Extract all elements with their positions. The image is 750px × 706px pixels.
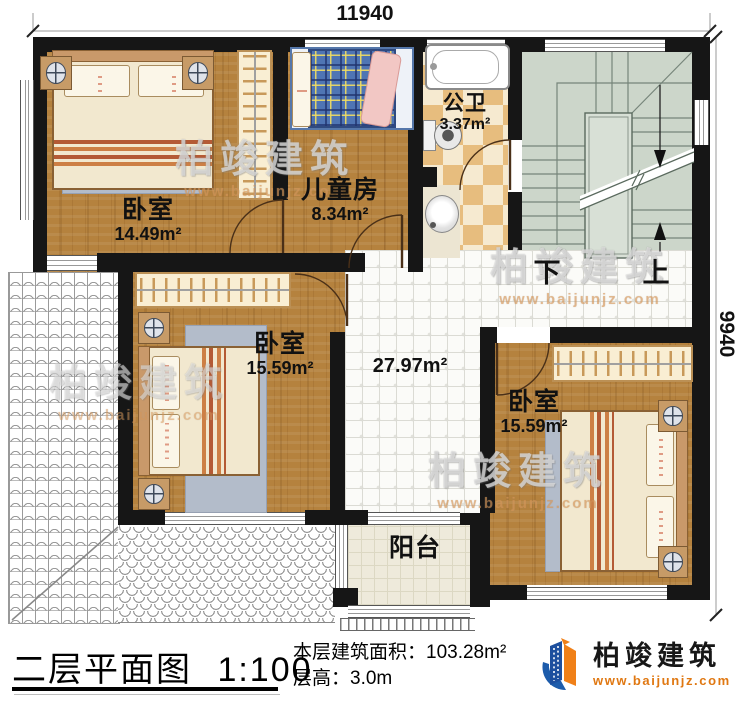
lamp-icon (188, 62, 209, 84)
label-hall-area: 27.97m² (358, 355, 462, 377)
bathtub-inner (432, 50, 499, 84)
floor-plan-canvas: 柏竣建筑 www.baijunjz.com 柏竣建筑 www.baijunjz.… (0, 0, 750, 706)
logo: 柏竣建筑 www.baijunjz.com (536, 636, 731, 694)
label-kids-room: 儿童房 8.34m² (280, 176, 400, 224)
wardrobe-bedroom1 (237, 50, 272, 200)
logo-url: www.baijunjz.com (593, 673, 731, 688)
nightstand-bedroom1-left (40, 56, 72, 90)
nightstand-bedroom2-bottom (138, 478, 170, 510)
wall-horizontal-mid (97, 253, 365, 272)
lamp-icon (144, 318, 165, 339)
lamp-icon (144, 484, 165, 505)
room-area: 27.97m² (358, 355, 462, 377)
wall-bedroom3-bottom-a (480, 585, 527, 600)
window-stairs-right (694, 100, 709, 145)
label-bathroom: 公卫 3.37m² (424, 92, 506, 133)
bathtub-faucet-icon (430, 63, 437, 70)
title-underline-thin (14, 694, 280, 695)
room-area: 8.34m² (280, 204, 400, 224)
label-bedroom2: 卧室 15.59m² (230, 330, 330, 378)
wall-bedroom2-bottom-a (118, 510, 165, 525)
plan-stats: 本层建筑面积：103.28m² 层高：3.0m (293, 640, 506, 692)
room-name: 儿童房 (280, 176, 400, 204)
label-bedroom1: 卧室 14.49m² (88, 196, 208, 244)
stats-height-line: 层高：3.0m (293, 666, 506, 692)
logo-name: 柏竣建筑 (593, 643, 731, 670)
window-bedroom1-left (20, 80, 34, 220)
wall-bedroom3-top-b (550, 327, 710, 343)
label-stairs-up: 上 (634, 251, 678, 290)
wardrobe-bedroom2 (135, 272, 291, 308)
floor-hall-corridor (345, 250, 480, 513)
label-balcony: 阳台 (378, 534, 452, 562)
wall-bedroom2-left (118, 272, 133, 525)
dimension-right: 9940 (714, 306, 738, 362)
bed-kids-pillow (292, 52, 311, 127)
stats-height-value: 3.0m (350, 668, 392, 689)
window-bedroom2-bottom (165, 512, 305, 525)
room-name: 公卫 (424, 92, 506, 116)
wall-bedroom3-top-a (480, 327, 497, 343)
plan-title: 二层平面图 1:100 (12, 642, 313, 691)
wall-bath-stairs-b (508, 192, 522, 250)
plan-title-name: 二层平面图 (12, 651, 192, 689)
room-name: 卧室 (88, 196, 208, 224)
roof-bottom (118, 527, 335, 623)
nightstand-bedroom2-top (138, 312, 170, 344)
nightstand-bedroom3-bottom (658, 546, 688, 578)
lamp-icon (663, 406, 682, 427)
label-stairs-down: 下 (525, 251, 569, 290)
nightstand-bedroom1-right (182, 56, 214, 90)
balcony-railing (340, 618, 475, 631)
floor-stairwell (522, 52, 692, 250)
wall-bedroom2-bottom-b (305, 510, 368, 525)
wall-bedroom2-right (330, 332, 345, 525)
room-area: 15.59m² (230, 358, 330, 378)
wall-bath-stub (412, 167, 437, 187)
dimension-top: 11940 (300, 2, 430, 26)
window-balcony-slider (368, 512, 460, 525)
window-bedroom3-bottom (527, 587, 667, 600)
stats-area-line: 本层建筑面积：103.28m² (293, 640, 506, 666)
nightstand-bedroom3-top (658, 400, 688, 432)
stats-height-label: 层高： (293, 668, 350, 689)
window-midwall-left (47, 255, 97, 271)
stats-area-value: 103.28m² (426, 642, 506, 663)
window-balcony-left (335, 525, 348, 588)
lamp-icon (46, 62, 67, 84)
wardrobe-bedroom3 (552, 345, 693, 382)
window-balcony-bottom (348, 605, 470, 618)
room-area: 14.49m² (88, 224, 208, 244)
wall-bath-stairs-a (508, 37, 522, 140)
room-name: 阳台 (378, 534, 452, 562)
roof-left (8, 272, 120, 624)
sink-drain-icon (430, 222, 436, 228)
logo-building-icon (536, 636, 586, 694)
floor-balcony (348, 513, 470, 618)
wall-bedroom3-bottom-b (667, 585, 710, 600)
label-bedroom3: 卧室 15.59m² (484, 388, 584, 436)
title-underline (12, 687, 278, 691)
stats-area-label: 本层建筑面积： (293, 642, 426, 663)
room-name: 卧室 (484, 388, 584, 416)
window-stairs-top (545, 39, 665, 52)
room-area: 15.59m² (484, 416, 584, 436)
room-area: 3.37m² (424, 116, 506, 134)
bathtub (425, 44, 510, 90)
lamp-icon (663, 552, 682, 573)
room-name: 卧室 (230, 330, 330, 358)
